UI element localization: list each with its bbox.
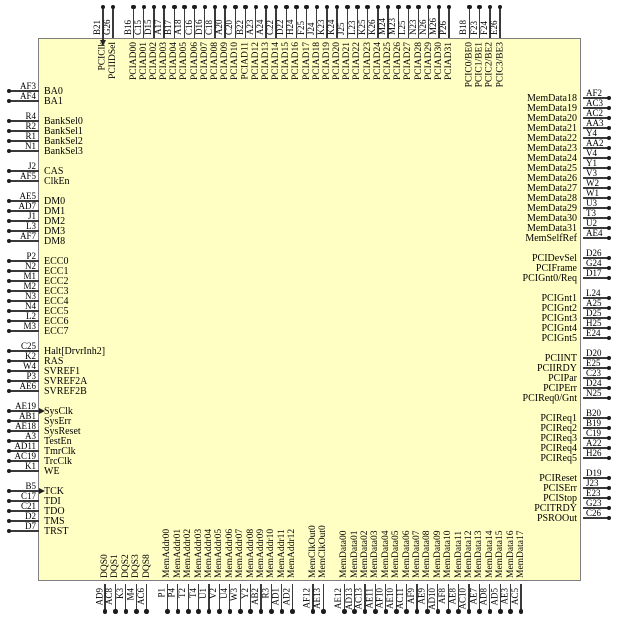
pin-dot xyxy=(607,196,612,201)
pin-code-label: W2 xyxy=(586,178,599,188)
pin-line xyxy=(9,300,39,301)
pin-code-label: AC19 xyxy=(14,451,36,461)
pin-code-label: G23 xyxy=(586,498,602,508)
pin-line xyxy=(520,584,521,611)
pin-code-label: M4 xyxy=(125,588,135,601)
pin-dot xyxy=(7,459,12,464)
pin-code-label: B17 xyxy=(163,20,173,35)
pin-line xyxy=(583,427,609,428)
pin-line xyxy=(448,7,449,38)
pin-code-label: N3 xyxy=(25,291,36,301)
pin-line xyxy=(214,7,215,38)
pin-line xyxy=(583,337,609,338)
pin-dot xyxy=(134,609,139,614)
pin-line xyxy=(125,584,126,611)
pin-code-label: A18 xyxy=(173,20,183,36)
pin-dot xyxy=(7,289,12,294)
pin-code-label: AE19 xyxy=(15,401,36,411)
pin-line xyxy=(583,217,609,218)
pin-line xyxy=(583,517,609,518)
pin-dot xyxy=(7,409,12,414)
pin-code-label: V4 xyxy=(586,148,597,158)
pin-dot xyxy=(498,5,503,10)
pin-dot xyxy=(345,5,350,10)
pin-code-label: AD1 xyxy=(271,588,281,606)
pin-line xyxy=(9,220,39,221)
pin-line xyxy=(438,7,439,38)
pin-code-label: A20 xyxy=(214,20,224,36)
pin-code-label: C25 xyxy=(21,341,36,351)
pin-dot xyxy=(7,259,12,264)
pin-line xyxy=(583,197,609,198)
pin-dot xyxy=(355,5,360,10)
pin-dot xyxy=(607,216,612,221)
pin-line xyxy=(583,387,609,388)
pin-dot xyxy=(607,366,612,371)
pin-dot xyxy=(7,429,12,434)
pin-line xyxy=(9,470,39,471)
pin-line xyxy=(377,7,378,38)
pin-dot xyxy=(607,206,612,211)
pin-code-label: AE11 xyxy=(364,588,374,609)
pin-code-label: C20 xyxy=(224,20,234,35)
pin-dot xyxy=(7,169,12,174)
pin-dot xyxy=(467,5,472,10)
pin-line xyxy=(448,584,449,611)
pin-line xyxy=(583,297,609,298)
pin-line xyxy=(357,7,358,38)
pin-line xyxy=(9,460,39,461)
pin-line xyxy=(9,180,39,181)
pin-code-label: AF5 xyxy=(20,171,36,181)
pin-dot xyxy=(7,349,12,354)
pin-code-label: H26 xyxy=(586,448,602,458)
pin-code-label: B22 xyxy=(235,20,245,35)
pin-line xyxy=(9,430,39,431)
pin-code-label: AF3 xyxy=(20,81,36,91)
pin-code-label: R3 xyxy=(260,588,270,599)
pin-line xyxy=(583,447,609,448)
pin-line xyxy=(9,260,39,261)
pin-line xyxy=(9,370,39,371)
pin-code-label: W4 xyxy=(23,361,36,371)
pin-line xyxy=(224,7,225,38)
pin-line xyxy=(479,584,480,611)
pin-line xyxy=(9,440,39,441)
pin-line xyxy=(208,584,209,611)
pin-dot xyxy=(384,609,389,614)
pin-code-label: AD13 xyxy=(344,588,354,610)
pin-code-label: AE8 xyxy=(448,588,458,605)
pin-line xyxy=(408,7,409,38)
pin-dot xyxy=(376,5,381,10)
pin-line xyxy=(292,584,293,611)
pin-code-label: M2 xyxy=(23,281,36,291)
pin-dot xyxy=(607,236,612,241)
pin-dot xyxy=(427,5,432,10)
pin-code-label: AC8 xyxy=(104,588,114,605)
pin-line xyxy=(9,290,39,291)
pin-dot xyxy=(217,609,222,614)
pin-dot xyxy=(7,129,12,134)
pin-line xyxy=(306,7,307,38)
pin-dot xyxy=(406,5,411,10)
pin-line xyxy=(326,7,327,38)
pin-line xyxy=(112,7,113,38)
pin-line xyxy=(9,120,39,121)
pin-line xyxy=(583,167,609,168)
pin-dot xyxy=(113,609,118,614)
pin-line xyxy=(344,584,345,611)
pin-line xyxy=(499,7,500,38)
pin-code-label: A25 xyxy=(586,298,602,308)
pin-code-label: B21 xyxy=(92,20,102,35)
pin-dot xyxy=(607,306,612,311)
pin-dot xyxy=(607,376,612,381)
pinout-diagram: B21PCIClkG26PCIIDSelB16PCIAD00C15PCIAD01… xyxy=(0,0,620,620)
pin-line xyxy=(177,584,178,611)
pin-line xyxy=(583,137,609,138)
pin-dot xyxy=(203,5,208,10)
pin-code-label: L25 xyxy=(397,21,407,36)
pin-line xyxy=(281,584,282,611)
pin-code-label: H25 xyxy=(586,318,602,328)
pin-line xyxy=(479,7,480,38)
pin-code-label: E24 xyxy=(586,328,601,338)
pin-dot xyxy=(243,5,248,10)
pin-code-label: T3 xyxy=(586,208,596,218)
pin-dot xyxy=(284,5,289,10)
pin-line xyxy=(194,7,195,38)
pin-dot xyxy=(223,5,228,10)
pin-line xyxy=(500,584,501,611)
pin-dot xyxy=(607,356,612,361)
pin-code-label: M1 xyxy=(23,271,36,281)
pin-line xyxy=(9,130,39,131)
pin-dot xyxy=(607,446,612,451)
pin-line xyxy=(583,207,609,208)
pin-dot xyxy=(7,89,12,94)
pin-code-label: AC10 xyxy=(458,588,468,610)
pin-dot xyxy=(7,359,12,364)
pin-dot xyxy=(7,469,12,474)
pin-code-label: D17 xyxy=(586,268,602,278)
pin-line xyxy=(387,7,388,38)
pin-line xyxy=(9,410,39,411)
pin-code-label: R4 xyxy=(25,111,36,121)
pin-line xyxy=(9,310,39,311)
pin-code-label: R2 xyxy=(25,121,36,131)
pin-dot xyxy=(254,5,259,10)
pin-dot xyxy=(436,609,441,614)
pin-line xyxy=(347,7,348,38)
pin-dot xyxy=(352,609,357,614)
pin-dot xyxy=(7,229,12,234)
pin-line xyxy=(275,7,276,38)
pin-dot xyxy=(7,299,12,304)
pin-line xyxy=(9,140,39,141)
pin-code-label: AE3 xyxy=(500,588,510,605)
pin-line xyxy=(336,7,337,38)
pin-dot xyxy=(228,609,233,614)
pin-code-label: F25 xyxy=(296,21,306,35)
pin-dot xyxy=(248,609,253,614)
pin-dot xyxy=(607,316,612,321)
pin-dot xyxy=(386,5,391,10)
pin-code-label: K26 xyxy=(367,20,377,36)
pin-dot xyxy=(607,116,612,121)
pin-line xyxy=(143,7,144,38)
pin-line xyxy=(583,237,609,238)
pin-dot xyxy=(7,99,12,104)
pin-line xyxy=(9,330,39,331)
pin-dot xyxy=(365,5,370,10)
pin-dot xyxy=(607,266,612,271)
pin-dot xyxy=(321,609,326,614)
pin-line xyxy=(9,210,39,211)
pin-dot xyxy=(162,5,167,10)
pin-line xyxy=(583,507,609,508)
pin-line xyxy=(9,380,39,381)
pin-line xyxy=(583,227,609,228)
pin-dot xyxy=(7,529,12,534)
pin-dot xyxy=(196,609,201,614)
pin-dot xyxy=(7,489,12,494)
pin-code-label: Y1 xyxy=(586,158,597,168)
pin-code-label: C18 xyxy=(204,20,214,35)
pin-dot xyxy=(207,609,212,614)
pin-dot xyxy=(176,609,181,614)
pin-line xyxy=(174,7,175,38)
pin-line xyxy=(367,7,368,38)
pin-code-label: AC2 xyxy=(586,108,603,118)
pin-dot xyxy=(607,156,612,161)
pin-code-label: AE4 xyxy=(586,228,603,238)
pin-code-label: D22 xyxy=(275,20,285,36)
pin-line xyxy=(163,7,164,38)
pin-line xyxy=(9,520,39,521)
pin-dot xyxy=(373,609,378,614)
pin-dot xyxy=(7,449,12,454)
pin-code-label: AE13 xyxy=(312,588,322,609)
pin-dot xyxy=(280,609,285,614)
pin-dot xyxy=(456,609,461,614)
pin-line xyxy=(271,584,272,611)
pin-code-label: P1 xyxy=(156,588,166,598)
pin-code-label: M23 xyxy=(387,18,397,35)
pin-code-label: C19 xyxy=(586,428,601,438)
pin-dot xyxy=(363,609,368,614)
pin-line xyxy=(184,7,185,38)
pin-line xyxy=(396,584,397,611)
pin-line xyxy=(9,500,39,501)
pin-dot xyxy=(269,609,274,614)
pin-code-label: D7 xyxy=(25,521,36,531)
pin-code-label: U2 xyxy=(586,218,597,228)
pin-code-label: B18 xyxy=(458,20,468,35)
pin-line xyxy=(219,584,220,611)
pin-code-label: N1 xyxy=(25,141,36,151)
pin-code-label: AF12 xyxy=(302,588,312,609)
pin-code-label: D2 xyxy=(25,511,36,521)
pin-code-label: J1 xyxy=(28,211,36,221)
chip-body xyxy=(38,38,581,581)
pin-line xyxy=(583,187,609,188)
pin-dot xyxy=(335,5,340,10)
pin-code-label: AC11 xyxy=(396,588,406,609)
pin-line xyxy=(188,584,189,611)
pin-line xyxy=(286,7,287,38)
pin-line xyxy=(469,7,470,38)
pin-code-label: AC13 xyxy=(354,588,364,610)
pin-code-label: C23 xyxy=(586,368,601,378)
pin-dot xyxy=(7,269,12,274)
pin-line xyxy=(489,7,490,38)
pin-dot xyxy=(607,146,612,151)
pin-code-label: AF9 xyxy=(406,588,416,604)
pin-code-label: AF2 xyxy=(586,88,602,98)
pin-dot xyxy=(131,5,136,10)
pin-line xyxy=(385,584,386,611)
pin-code-label: V3 xyxy=(586,168,597,178)
pin-code-label: D25 xyxy=(586,308,602,318)
pin-line xyxy=(510,584,511,611)
pin-code-label: AA2 xyxy=(586,138,604,148)
pin-code-label: AF10 xyxy=(375,588,385,609)
pin-code-label: R1 xyxy=(25,131,36,141)
pin-dot xyxy=(172,5,177,10)
pin-dot xyxy=(7,389,12,394)
pin-code-label: N23 xyxy=(408,20,418,36)
pin-code-label: A3 xyxy=(25,431,36,441)
pin-code-label: N26 xyxy=(418,20,428,36)
pin-code-label: G26 xyxy=(102,20,112,36)
pin-code-label: B19 xyxy=(586,418,601,428)
pin-dot xyxy=(7,139,12,144)
pin-line xyxy=(9,390,39,391)
pin-line xyxy=(198,584,199,611)
pin-code-label: U4 xyxy=(219,588,229,599)
pin-dot xyxy=(7,309,12,314)
pin-dot xyxy=(7,329,12,334)
pin-line xyxy=(583,127,609,128)
pin-dot xyxy=(467,609,472,614)
pin-line xyxy=(9,150,39,151)
pin-code-label: H24 xyxy=(285,20,295,36)
pin-line xyxy=(255,7,256,38)
pin-code-label: C16 xyxy=(184,20,194,35)
pin-dot xyxy=(7,509,12,514)
pin-line xyxy=(146,584,147,611)
pin-line xyxy=(316,7,317,38)
pin-dot xyxy=(607,496,612,501)
pin-line xyxy=(375,584,376,611)
pin-code-label: AF7 xyxy=(20,231,36,241)
pin-dot xyxy=(607,426,612,431)
pin-dot xyxy=(103,609,108,614)
pin-dot xyxy=(311,609,316,614)
pin-dot xyxy=(519,609,524,614)
pin-line xyxy=(9,170,39,171)
pin-dot xyxy=(447,5,452,10)
pin-dot xyxy=(213,5,218,10)
pin-code-label: AC6 xyxy=(136,588,146,605)
pin-code-label: AD7 xyxy=(19,201,37,211)
pin-code-label: N4 xyxy=(25,301,36,311)
pin-code-label: M3 xyxy=(23,321,36,331)
pin-code-label: U1 xyxy=(198,588,208,599)
pin-dot xyxy=(425,609,430,614)
pin-code-label: Y2 xyxy=(240,588,250,599)
pin-line xyxy=(583,177,609,178)
pin-line xyxy=(265,7,266,38)
pin-line xyxy=(9,200,39,201)
pin-code-label: J24 xyxy=(306,22,316,35)
pin-line xyxy=(583,317,609,318)
pin-code-label: L3 xyxy=(26,221,36,231)
pin-code-label: K3 xyxy=(115,588,125,599)
pin-dot xyxy=(7,319,12,324)
pin-code-label: U3 xyxy=(586,198,597,208)
pin-code-label: P2 xyxy=(26,251,36,261)
pin-code-label: D20 xyxy=(586,348,602,358)
pin-dot xyxy=(315,5,320,10)
pin-dot xyxy=(607,516,612,521)
pin-code-label: A23 xyxy=(245,20,255,36)
pin-line xyxy=(583,487,609,488)
pin-dot xyxy=(607,186,612,191)
pin-line xyxy=(354,584,355,611)
pin-dot xyxy=(607,96,612,101)
pin-code-label: AE10 xyxy=(385,588,395,609)
pin-line xyxy=(323,584,324,611)
pin-dot xyxy=(607,506,612,511)
pin-line xyxy=(364,584,365,611)
pin-code-label: AB1 xyxy=(19,411,36,421)
pin-dot xyxy=(607,126,612,131)
pin-code-label: AE5 xyxy=(20,191,37,201)
pin-dot xyxy=(7,199,12,204)
pin-line xyxy=(583,117,609,118)
pin-code-label: D19 xyxy=(586,468,602,478)
pin-dot xyxy=(7,219,12,224)
pin-code-label: AE12 xyxy=(333,588,343,609)
pin-dot xyxy=(186,609,191,614)
pin-line xyxy=(406,584,407,611)
pin-dot xyxy=(416,5,421,10)
pin-line xyxy=(296,7,297,38)
pin-code-label: AE7 xyxy=(468,588,478,605)
pin-dot xyxy=(607,336,612,341)
pin-dot xyxy=(7,209,12,214)
pin-line xyxy=(9,230,39,231)
pin-line xyxy=(583,367,609,368)
pin-code-label: AF4 xyxy=(20,91,36,101)
pin-dot xyxy=(144,609,149,614)
pin-line xyxy=(583,397,609,398)
pin-line xyxy=(9,530,39,531)
pin-dot xyxy=(607,256,612,261)
pin-dot xyxy=(607,166,612,171)
pin-line xyxy=(583,457,609,458)
pin-code-label: J25 xyxy=(336,22,346,35)
pin-line xyxy=(9,270,39,271)
pin-dot xyxy=(238,609,243,614)
pin-line xyxy=(9,420,39,421)
pin-line xyxy=(115,584,116,611)
pin-code-label: N25 xyxy=(586,388,602,398)
pin-line xyxy=(583,107,609,108)
